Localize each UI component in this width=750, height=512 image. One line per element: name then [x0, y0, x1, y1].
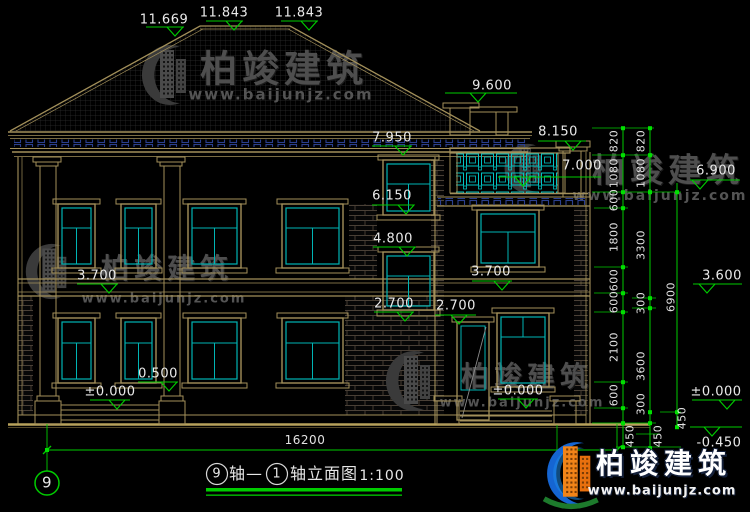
- dim-chain2: 300: [636, 292, 647, 315]
- level-label: ±0.000: [492, 385, 543, 398]
- level-label: 3.700: [77, 270, 117, 283]
- annotation-text-layer: 11.66911.84311.8439.6008.1507.9507.0006.…: [0, 0, 750, 512]
- window: [52, 313, 101, 388]
- dim-total-height: 450: [677, 407, 688, 430]
- level-label: 2.700: [374, 298, 414, 311]
- stone-wall-patch: [18, 296, 33, 415]
- level-label: 7.000: [562, 160, 602, 173]
- rooftop-pier: [443, 103, 517, 135]
- dim-chain2: 3300: [636, 230, 647, 260]
- axis-bubble: [35, 465, 59, 495]
- dim-chain2: 820: [636, 130, 647, 153]
- entrance-steps: [61, 405, 159, 420]
- dim-chain1: 1800: [609, 222, 620, 252]
- elevation-fill-layer: [0, 0, 750, 512]
- level-label: -0.450: [697, 437, 742, 450]
- roof-outline: [10, 26, 480, 131]
- watermark-logo-icon: [142, 45, 186, 105]
- dim-chain1: 820: [609, 130, 620, 153]
- watermark-url: www.baijunjz.com: [573, 189, 748, 203]
- level-label: 8.150: [538, 126, 578, 139]
- dim-total-width: 16200: [285, 434, 326, 446]
- level-label: 11.843: [200, 7, 249, 20]
- window: [182, 199, 247, 273]
- dim-chain1: 600: [609, 291, 620, 314]
- watermark-url: www.baijunjz.com: [188, 88, 373, 103]
- porch-pedestal: [434, 396, 580, 424]
- cad-elevation-screenshot: 柏竣建筑www.baijunjz.com柏竣建筑www.baijunjz.com…: [0, 0, 750, 512]
- elevation-linework-layer: [0, 0, 750, 512]
- bottom-dimension: [43, 424, 621, 465]
- title-axis-left: 9: [212, 468, 221, 481]
- stair-window-upper: [377, 155, 440, 220]
- dim-chain1: 600: [609, 269, 620, 292]
- dim-chain1: 1080: [609, 158, 620, 188]
- watermark-logo-icon: [26, 244, 67, 299]
- watermark-layer: 柏竣建筑www.baijunjz.com柏竣建筑www.baijunjz.com…: [0, 0, 750, 512]
- window: [52, 199, 101, 273]
- brand-logo-icon: [544, 442, 598, 506]
- level-label: 7.950: [372, 132, 412, 145]
- dim-chain2: 450: [653, 425, 664, 448]
- title-decoration: [206, 464, 402, 496]
- watermark-logo-icon: [505, 144, 541, 193]
- dim-chain2: 3600: [636, 351, 647, 381]
- level-label: 3.600: [702, 270, 742, 283]
- ground-line: [8, 425, 650, 428]
- title-mid: 轴—: [229, 466, 263, 482]
- dim-chain1: 600: [609, 384, 620, 407]
- level-label: 4.800: [373, 233, 413, 246]
- watermark-logo-icon: [386, 351, 430, 411]
- window: [276, 313, 349, 388]
- stone-wall-patch: [431, 160, 444, 415]
- dim-chain2: 1080: [636, 158, 647, 188]
- wall-lines: [18, 152, 590, 424]
- dim-total-height: 6900: [666, 282, 677, 312]
- level-label: 3.700: [471, 266, 511, 279]
- level-label: 11.843: [275, 7, 324, 20]
- balcony-railing: [437, 148, 590, 206]
- window: [115, 313, 162, 388]
- main-cornice: [8, 132, 532, 157]
- logo-url: www.baijunjz.com: [588, 485, 737, 498]
- column-left: [33, 157, 61, 424]
- stone-wall-patch: [345, 296, 435, 415]
- level-label: 11.669: [140, 14, 189, 27]
- dim-chain1: 2100: [609, 332, 620, 362]
- stone-wall-patch: [349, 204, 377, 279]
- window: [276, 199, 349, 273]
- dim-chain1: 450: [625, 425, 636, 448]
- annex-door: [452, 317, 494, 420]
- dim-chain2: 300: [636, 393, 647, 416]
- axis-bubble-number: 9: [42, 476, 52, 491]
- roof-hip: [10, 26, 480, 131]
- title-scale: 1:100: [359, 469, 404, 483]
- watermark-brand: 柏竣建筑: [461, 363, 593, 391]
- dim-chain1: 600: [609, 189, 620, 212]
- level-label: ±0.000: [690, 386, 741, 399]
- level-label: 2.700: [436, 300, 476, 313]
- level-label: ±0.000: [84, 386, 135, 399]
- stone-wall-patch: [574, 206, 588, 415]
- window: [182, 313, 247, 388]
- level-label: 6.900: [696, 165, 736, 178]
- window: [115, 199, 162, 273]
- watermark-brand: 柏竣建筑: [592, 154, 744, 187]
- annex-window-2f: [471, 205, 545, 272]
- level-label: 9.600: [472, 80, 512, 93]
- level-marker-glyphs: [77, 21, 742, 436]
- logo-brand: 柏竣建筑: [596, 450, 732, 478]
- parapet-pier: [556, 141, 590, 197]
- watermark-url: www.baijunjz.com: [440, 397, 605, 410]
- watermark-url: www.baijunjz.com: [82, 293, 247, 306]
- title-axis-right: 1: [272, 468, 281, 481]
- column-right: [157, 157, 185, 424]
- dimension-ticks: [621, 126, 679, 450]
- annex-window-1f: [491, 308, 555, 392]
- watermark-brand: 柏竣建筑: [101, 255, 233, 283]
- level-label: 0.500: [138, 368, 178, 381]
- dimension-chains: [557, 128, 681, 452]
- level-label: 6.150: [372, 190, 412, 203]
- watermark-brand: 柏竣建筑: [200, 51, 368, 88]
- stair-window-lower: [377, 247, 440, 316]
- title-suffix: 轴立面图: [290, 466, 358, 482]
